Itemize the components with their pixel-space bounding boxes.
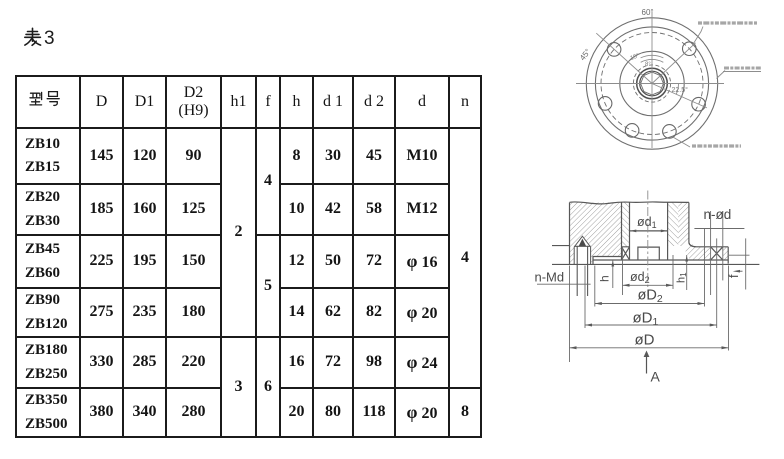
- svg-text:8°: 8°: [645, 62, 651, 68]
- svg-text:f: f: [727, 274, 741, 278]
- svg-text:h: h: [598, 275, 612, 282]
- svg-text:h1: h1: [676, 272, 689, 283]
- svg-text:ød2: ød2: [630, 270, 650, 285]
- svg-text:n-Md: n-Md: [535, 270, 565, 285]
- svg-text:n-ød: n-ød: [704, 207, 732, 222]
- svg-text:øD: øD: [635, 332, 655, 349]
- svg-text:øD1: øD1: [633, 310, 659, 329]
- svg-text:22.5°: 22.5°: [672, 86, 689, 94]
- svg-text:øD2: øD2: [638, 288, 663, 306]
- svg-text:ød1: ød1: [637, 215, 657, 230]
- svg-text:A: A: [651, 369, 661, 385]
- svg-text:60°: 60°: [642, 8, 654, 17]
